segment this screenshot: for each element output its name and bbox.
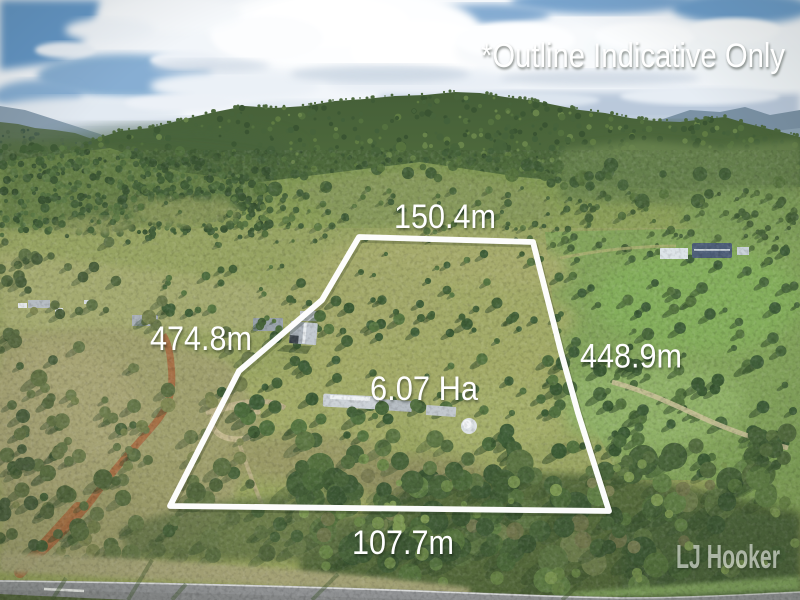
svg-text:LJ Hooker: LJ Hooker — [676, 538, 780, 575]
svg-text:448.9m: 448.9m — [580, 338, 682, 376]
svg-text:150.4m: 150.4m — [394, 198, 496, 236]
svg-text:6.07 Ha: 6.07 Ha — [370, 370, 478, 408]
svg-text:107.7m: 107.7m — [352, 524, 454, 562]
svg-text:*Outline Indicative Only: *Outline Indicative Only — [481, 37, 785, 75]
svg-text:474.8m: 474.8m — [150, 320, 252, 358]
